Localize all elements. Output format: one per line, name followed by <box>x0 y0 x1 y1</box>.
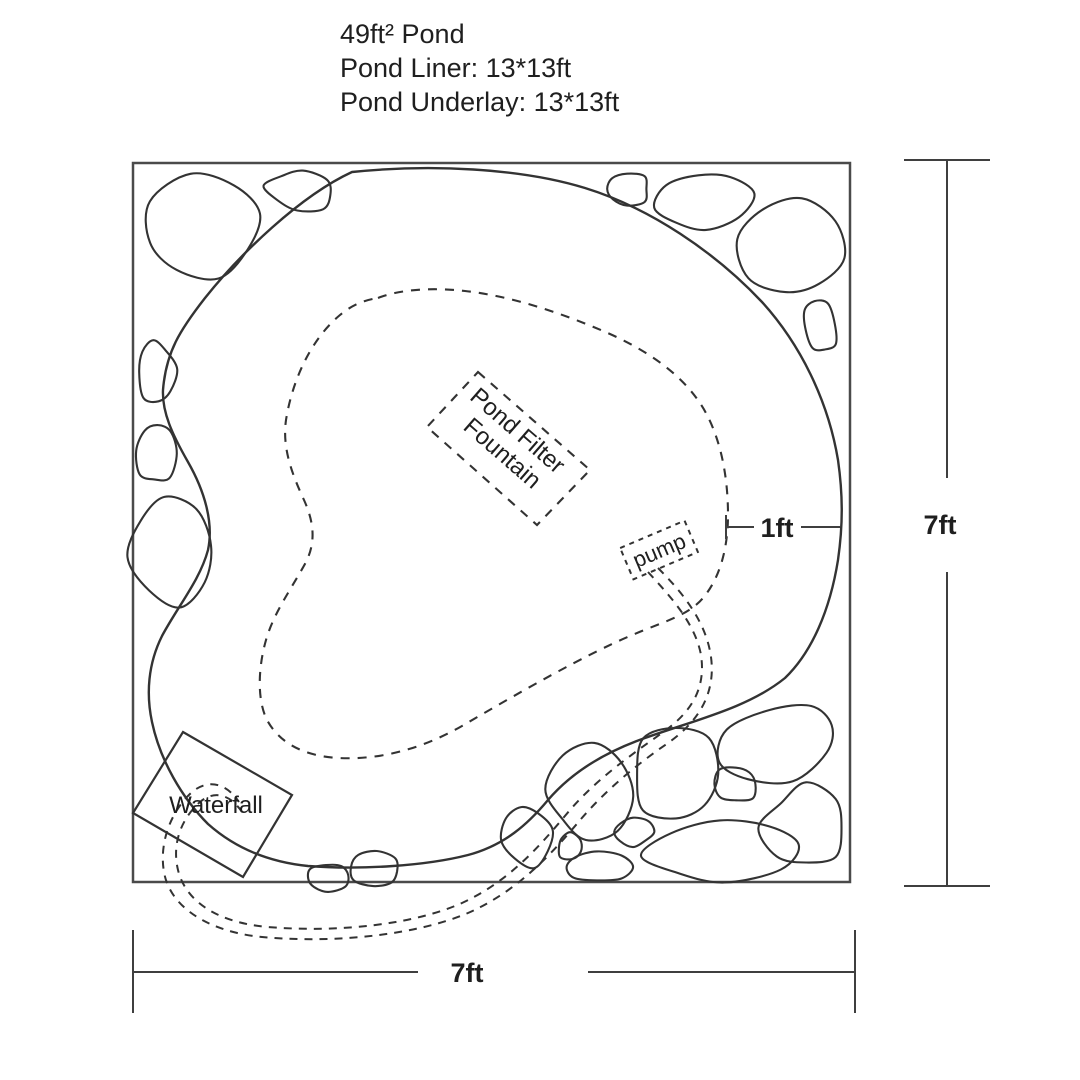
pond-outline <box>149 168 842 867</box>
offset-value: 1ft <box>761 513 794 543</box>
rock <box>308 865 349 892</box>
rock <box>714 767 755 800</box>
rock <box>607 174 647 206</box>
rock <box>567 851 634 880</box>
title-underlay: Pond Underlay: 13*13ft <box>340 87 620 117</box>
title-area: 49ft² Pond <box>340 19 465 49</box>
title-liner: Pond Liner: 13*13ft <box>340 53 572 83</box>
pump-label: pump <box>629 528 689 573</box>
rock <box>146 173 261 279</box>
filter-label: Pond Filter Fountain <box>447 383 575 504</box>
rock <box>614 818 654 847</box>
rock <box>654 175 755 231</box>
pond-filter-fountain: Pond Filter Fountain <box>427 372 590 525</box>
rock <box>758 782 841 862</box>
rock <box>637 728 718 819</box>
pond-plan-drawing: 49ft² Pond Pond Liner: 13*13ft Pond Unde… <box>0 0 1080 1080</box>
pump: pump <box>620 521 698 580</box>
tubing-line-inner <box>163 568 712 939</box>
rock <box>804 300 837 350</box>
waterfall-label: Waterfall <box>169 792 263 819</box>
width-dimension <box>133 930 855 1013</box>
tubing-line-outer <box>176 572 702 929</box>
rock <box>127 497 211 608</box>
rock <box>718 705 833 783</box>
width-value: 7ft <box>451 958 484 988</box>
shelf-dashed-outline <box>260 289 728 758</box>
pump-tubing <box>163 568 712 939</box>
rock <box>641 820 799 882</box>
plan-canvas: 49ft² Pond Pond Liner: 13*13ft Pond Unde… <box>0 0 1080 1080</box>
rock <box>136 425 177 480</box>
rock <box>737 198 845 292</box>
rock <box>545 743 633 841</box>
waterfall: Waterfall <box>133 732 292 877</box>
height-value: 7ft <box>924 510 957 540</box>
title-block: 49ft² Pond Pond Liner: 13*13ft Pond Unde… <box>340 19 620 117</box>
